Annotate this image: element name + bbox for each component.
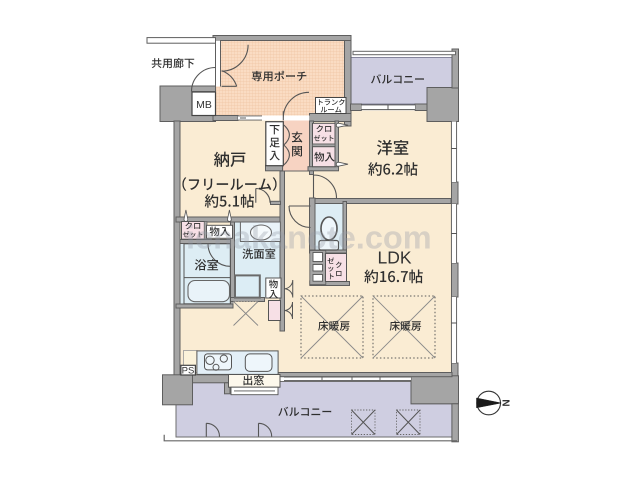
- svg-text:PS: PS: [182, 365, 195, 376]
- svg-text:MB: MB: [196, 99, 212, 111]
- svg-text:ienakanote.com: ienakanote.com: [186, 220, 432, 256]
- svg-text:N: N: [499, 399, 510, 406]
